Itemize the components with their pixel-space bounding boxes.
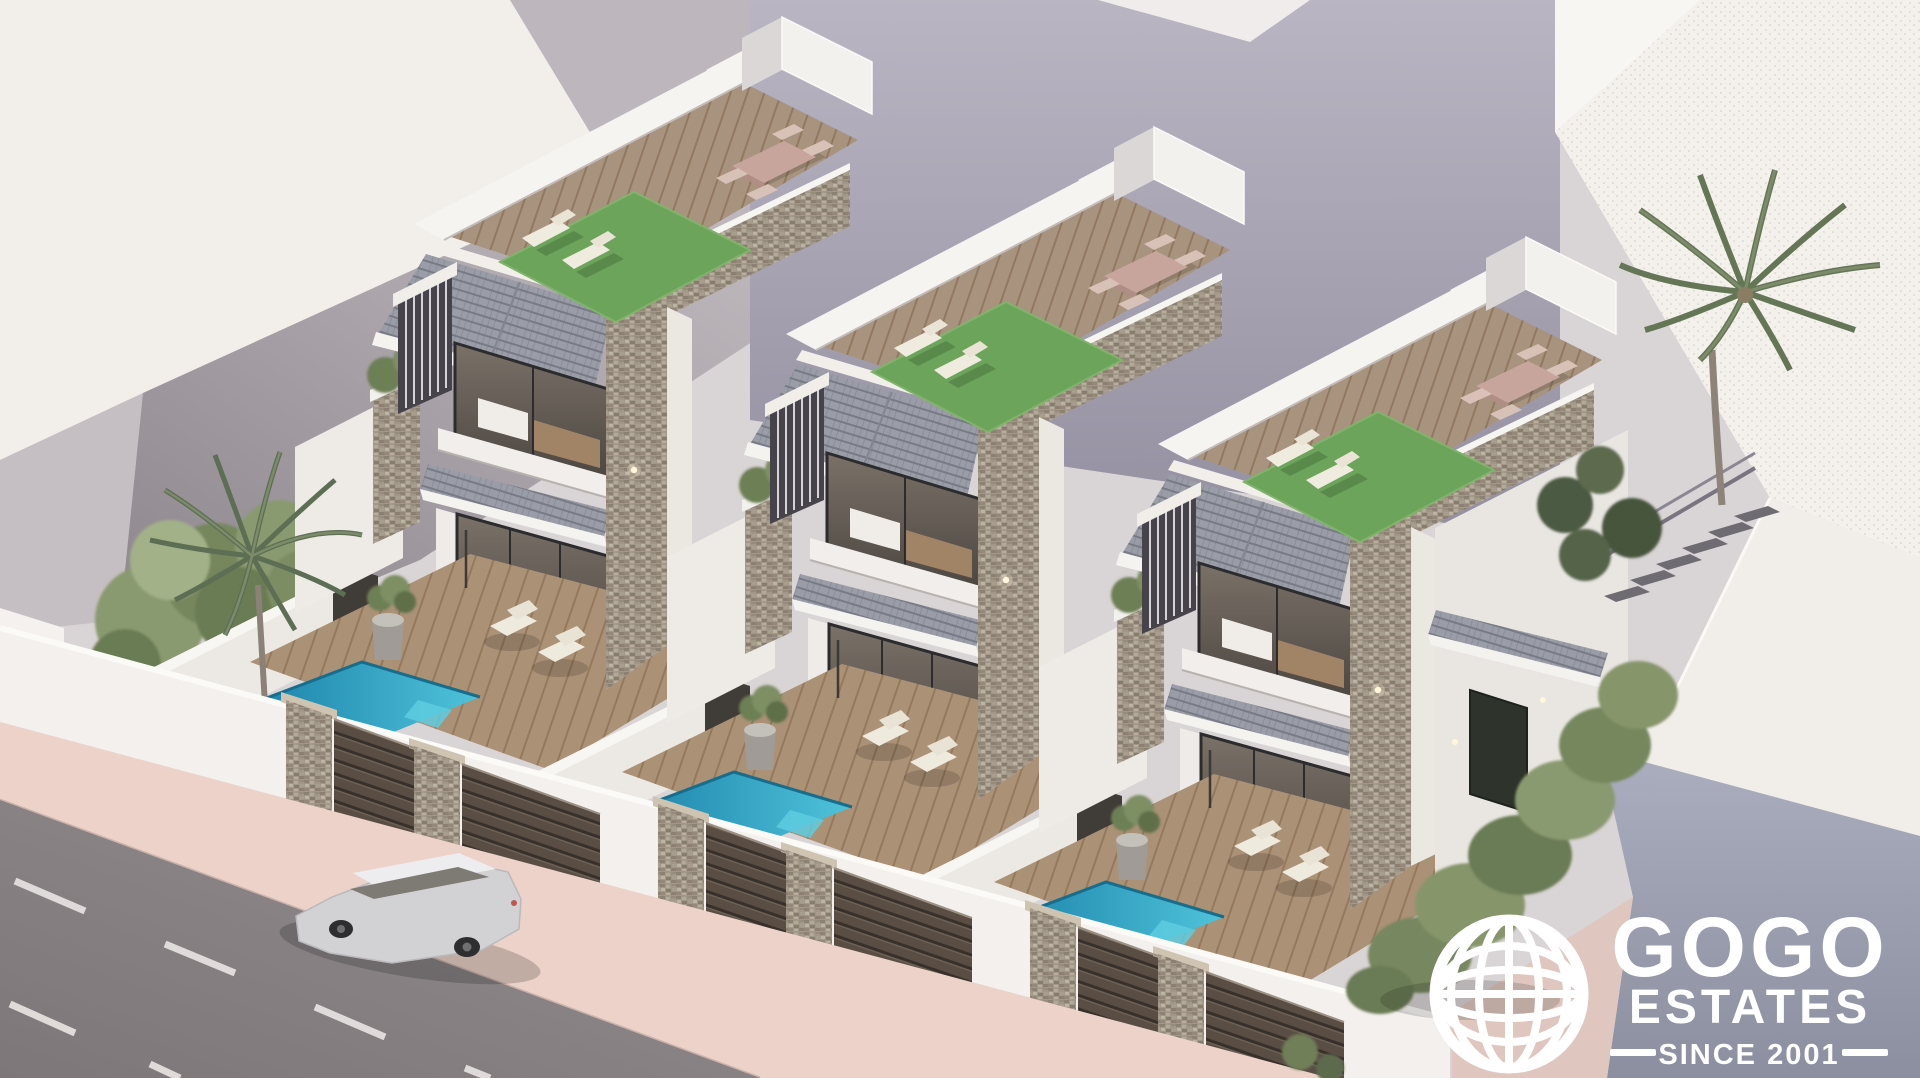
globe-icon [1435, 920, 1583, 1068]
car-taillight [511, 900, 517, 906]
render-image: GOGO ESTATES SINCE 2001 [0, 0, 1920, 1078]
watermark-brand-top: GOGO [1611, 900, 1888, 994]
watermark-brand-bottom: ESTATES [1629, 981, 1871, 1034]
watermark-tagline: SINCE 2001 [1658, 1039, 1839, 1071]
tagline-dash-right [1842, 1049, 1888, 1056]
tagline-dash-left [1610, 1049, 1656, 1056]
